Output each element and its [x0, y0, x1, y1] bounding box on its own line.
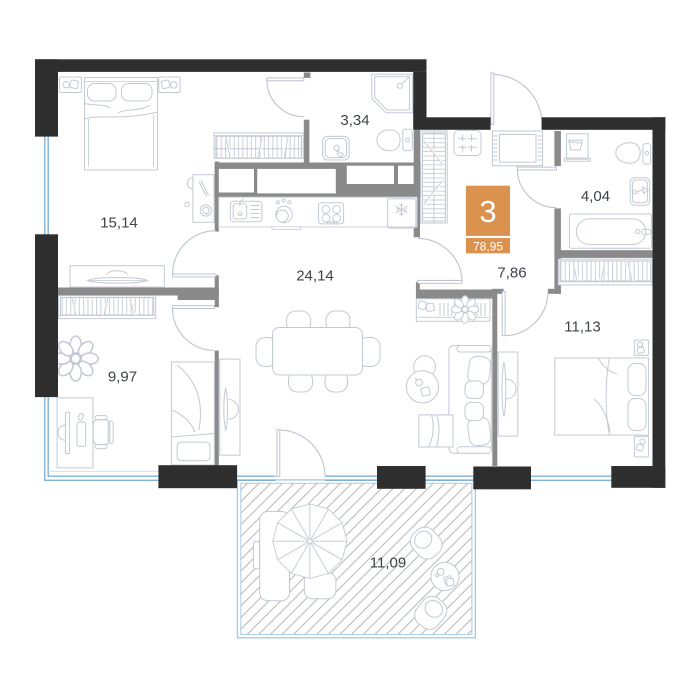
svg-text:3,34: 3,34 [340, 112, 369, 129]
svg-text:11,13: 11,13 [564, 319, 600, 336]
svg-text:7,86: 7,86 [497, 265, 526, 282]
svg-text:15,14: 15,14 [100, 215, 138, 232]
svg-text:9,97: 9,97 [108, 369, 137, 386]
svg-text:3: 3 [479, 194, 496, 229]
svg-text:24,14: 24,14 [296, 268, 334, 285]
svg-text:4,04: 4,04 [581, 188, 610, 205]
svg-text:11,09: 11,09 [370, 555, 406, 572]
svg-text:78,95: 78,95 [473, 240, 503, 254]
